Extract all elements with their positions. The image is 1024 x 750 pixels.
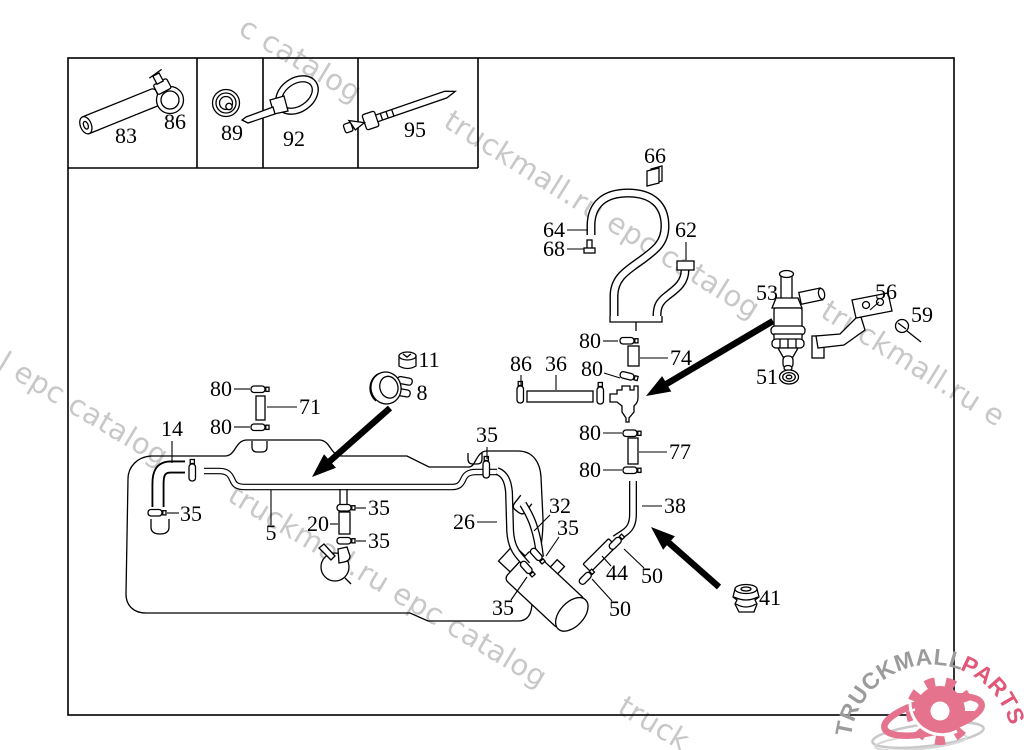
part-number-label: 14 [161, 416, 183, 441]
hose-62-end-fitting [677, 261, 694, 270]
callout-80: 80 [579, 328, 618, 353]
callout-11: 11 [418, 347, 439, 372]
part-number-label: 80 [581, 356, 603, 381]
callout-35: 35 [356, 495, 390, 520]
part-number-label: 26 [453, 509, 475, 534]
callout-51: 51 [756, 364, 778, 389]
vent-valve [610, 386, 638, 422]
callout-80: 80 [581, 356, 620, 381]
callout-68: 68 [543, 236, 584, 261]
part-number-label: 53 [756, 280, 778, 305]
tube-71 [256, 396, 265, 420]
legend-part-number-89: 89 [221, 120, 243, 145]
clamp [189, 460, 196, 482]
diagram-graphics [126, 166, 921, 637]
clip-8 [367, 369, 412, 408]
part-number-label: 74 [670, 345, 692, 370]
clamp-80 [620, 338, 638, 345]
clip-66 [647, 166, 662, 186]
part-number-label: 56 [875, 279, 897, 304]
u-clip [151, 519, 169, 534]
clamp-35 [148, 510, 166, 517]
callout-35: 35 [167, 501, 202, 526]
hose-26 [497, 471, 527, 565]
part-number-label: 71 [299, 394, 321, 419]
clamp-80 [619, 371, 638, 382]
callout-leader-line [604, 373, 620, 378]
part-number-label: 80 [579, 457, 601, 482]
truckmall-parts-logo: TRUCKMALLPARTS [830, 643, 1024, 750]
callout-35: 35 [546, 515, 579, 556]
grommet-41 [733, 585, 759, 613]
tube-36 [527, 391, 593, 402]
legend-part-number-95: 95 [404, 117, 426, 142]
callout-59: 59 [911, 302, 933, 327]
clamp-35 [483, 457, 490, 479]
callout-53: 53 [756, 280, 778, 305]
callout-80: 80 [210, 376, 250, 401]
part-number-label: 35 [557, 515, 579, 540]
clamp-80 [251, 424, 269, 431]
hose-pair-bracket [610, 316, 662, 331]
clamp-50 [578, 568, 595, 585]
part-number-label: 68 [543, 236, 565, 261]
part-number-label: 86 [510, 351, 532, 376]
part-number-label: 35 [368, 528, 390, 553]
part-number-label: 80 [210, 414, 232, 439]
part-number-label: 51 [756, 364, 778, 389]
part-number-label: 80 [579, 420, 601, 445]
tube-77 [628, 438, 638, 464]
callout-80: 80 [210, 414, 250, 439]
clamp [597, 383, 604, 405]
legend-part-89-grommet [213, 90, 240, 117]
part-number-label: 50 [641, 563, 663, 588]
callout-36: 36 [545, 351, 567, 390]
clamp-80 [623, 467, 641, 474]
callout-66: 66 [644, 143, 666, 168]
callout-50: 50 [592, 579, 631, 621]
watermark-text: l epc catalog [0, 345, 175, 473]
callout-38: 38 [642, 493, 686, 518]
part-number-label: 50 [609, 596, 631, 621]
callout-8: 8 [417, 380, 428, 405]
clamp-35 [337, 538, 355, 545]
callout-44: 44 [602, 556, 628, 585]
part-number-label: 41 [759, 585, 781, 610]
part-number-label: 11 [418, 347, 439, 372]
part-number-label: 44 [606, 560, 628, 585]
parts-diagram: c catalogtruckmall.ru epc catalogtruckma… [0, 0, 1024, 750]
clamp-86 [517, 382, 524, 404]
legend-part-number-92: 92 [283, 126, 305, 151]
callout-80: 80 [579, 457, 622, 482]
part-number-label: 35 [368, 495, 390, 520]
tube-74 [628, 346, 639, 366]
watermark-text: truckmall.ru epc catalog [438, 103, 766, 326]
clamp-80 [623, 430, 641, 437]
callout-71: 71 [267, 394, 321, 419]
legend-part-number-86: 86 [164, 109, 186, 134]
clamp-80 [251, 386, 269, 393]
part-number-label: 35 [180, 501, 202, 526]
legend-part-number-83: 83 [115, 123, 137, 148]
callout-41: 41 [759, 585, 781, 610]
washer-51 [780, 370, 799, 384]
watermark-layer: c catalogtruckmall.ru epc catalogtruckma… [0, 10, 1012, 750]
callout-26: 26 [453, 509, 497, 534]
catalog-page: c catalogtruckmall.ru epc catalogtruckma… [0, 0, 1024, 750]
callout-80: 80 [579, 420, 622, 445]
callout-layer: 6664686253565951807480863680778038118807… [161, 143, 933, 621]
hose-38 [615, 481, 633, 539]
part-number-label: 8 [417, 380, 428, 405]
part-number-label: 62 [675, 217, 697, 242]
gear-hub [931, 702, 950, 721]
part-number-label: 35 [492, 595, 514, 620]
part-number-label: 66 [644, 143, 666, 168]
part-number-label: 77 [669, 439, 691, 464]
callout-86: 86 [510, 351, 532, 385]
part-number-label: 38 [664, 493, 686, 518]
part-number-label: 36 [545, 351, 567, 376]
part-number-label: 80 [579, 328, 601, 353]
hose-5-branch [340, 489, 347, 504]
tube-20 [339, 512, 350, 534]
legend-box: 8386899295 [77, 68, 457, 151]
callout-74: 74 [640, 345, 692, 370]
part-number-label: 59 [911, 302, 933, 327]
clamp-35 [337, 505, 355, 512]
callout-35: 35 [476, 422, 498, 459]
part-number-label: 20 [307, 511, 329, 536]
part-number-label: 35 [476, 422, 498, 447]
bolt-68 [584, 240, 595, 253]
watermark-text: truck [612, 689, 695, 750]
callout-77: 77 [639, 439, 691, 464]
part-number-label: 5 [266, 520, 277, 545]
tank-clip-pocket [252, 441, 267, 452]
part-number-label: 80 [210, 376, 232, 401]
nut-11 [399, 352, 416, 369]
callout-50: 50 [624, 549, 663, 588]
